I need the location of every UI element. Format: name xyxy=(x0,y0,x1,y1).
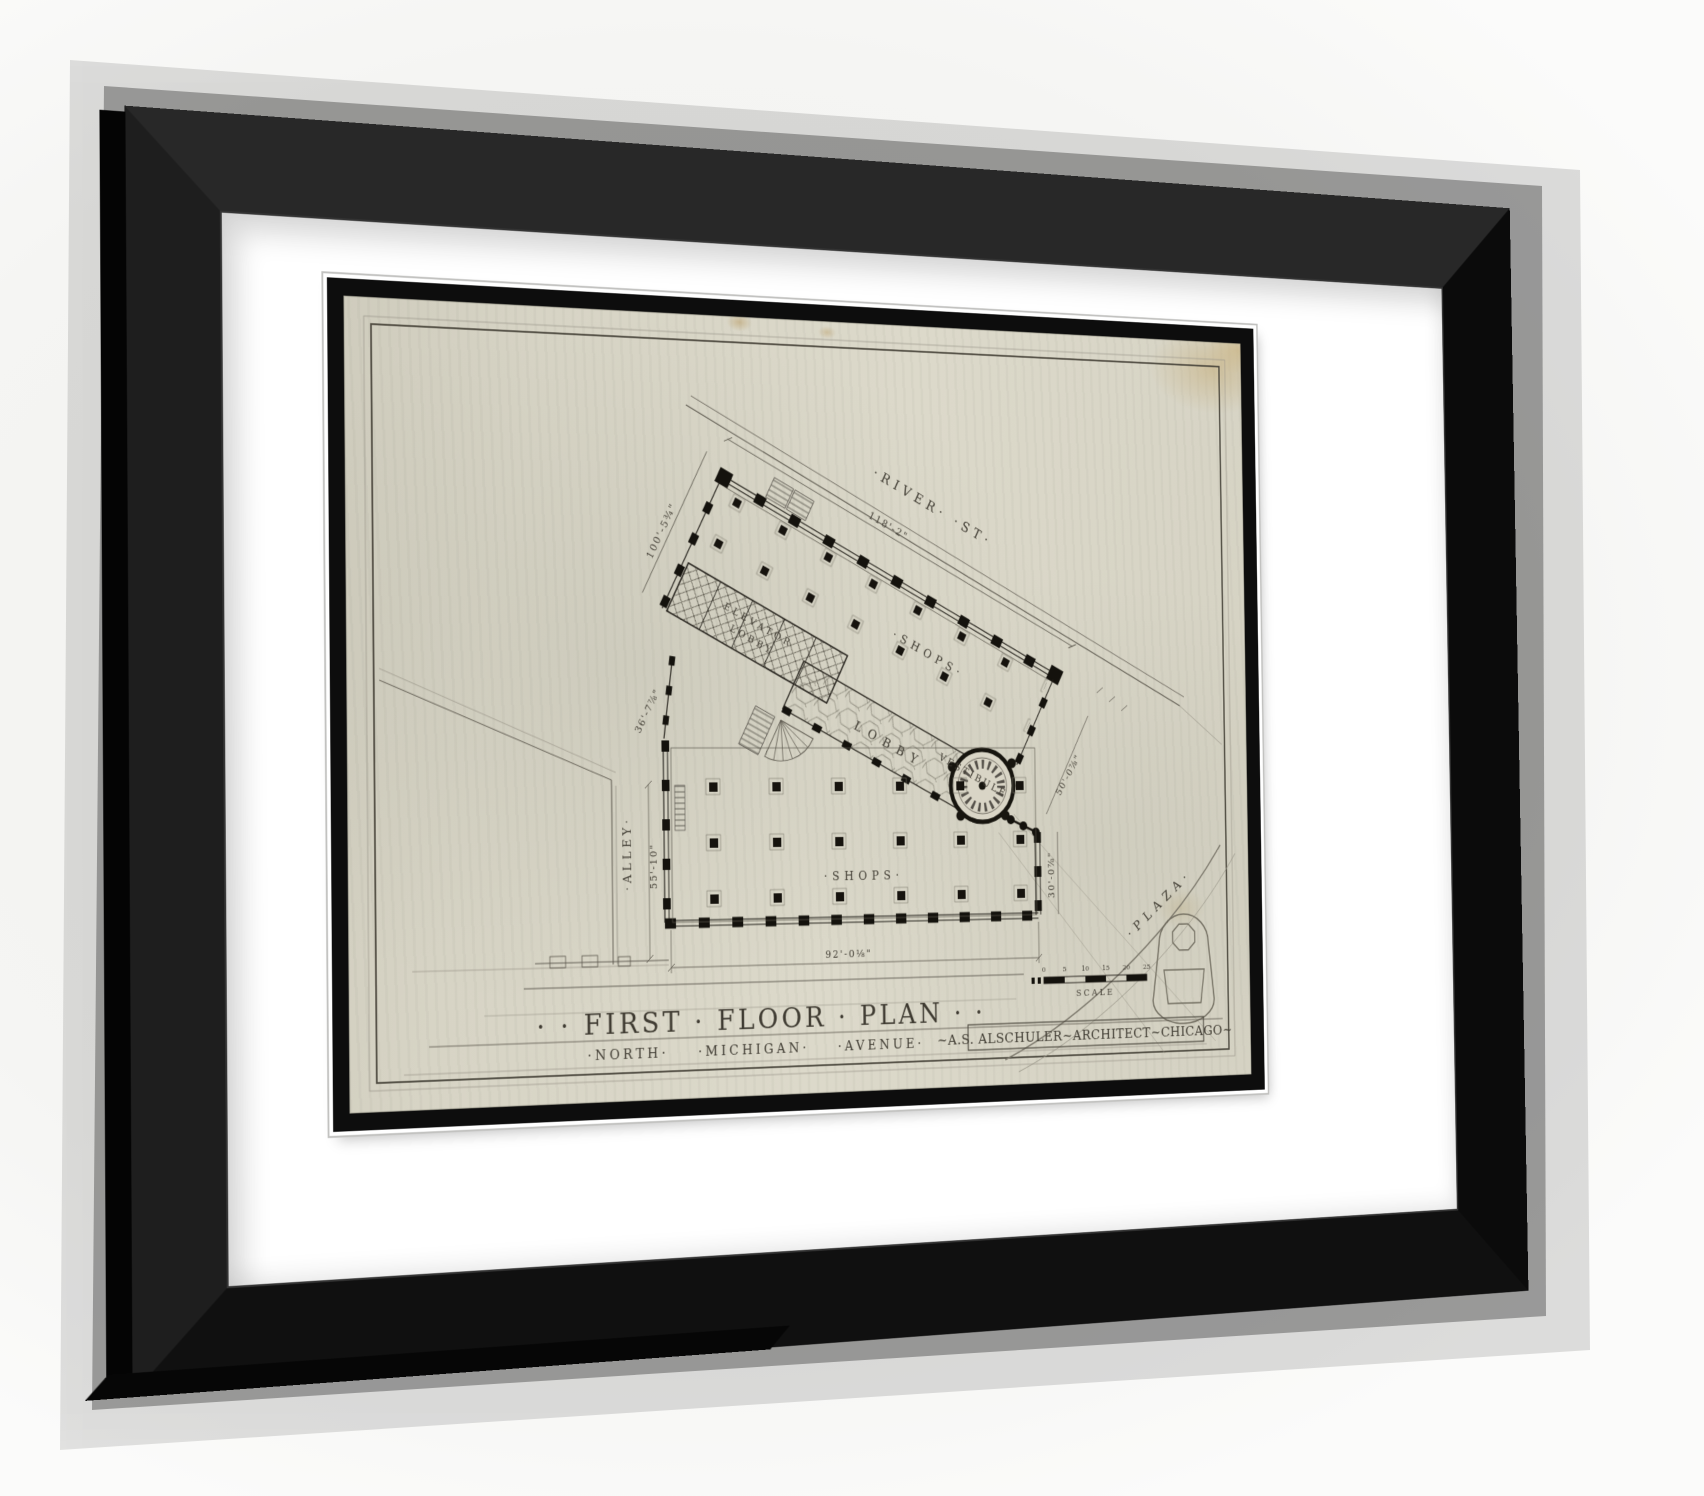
label-shops-lower: ·SHOPS· xyxy=(824,869,904,884)
scale-tick: 15 xyxy=(1102,964,1110,972)
frame-left-face xyxy=(99,110,132,1396)
scale-tick: 20 xyxy=(1122,963,1130,971)
scale-tick: 5 xyxy=(1063,965,1067,973)
scale-tick: 25 xyxy=(1143,962,1151,970)
dim-entrance-front: 50'-0⅞" xyxy=(1054,752,1083,797)
scale-label: SCALE xyxy=(1076,987,1115,998)
scale-bar: 0 5 10 15 20 25 SCALE xyxy=(1031,962,1151,1000)
dim-south-wall: 92'-0⅛" xyxy=(825,947,872,960)
dim-southwest-wall: 36'-7⅞" xyxy=(633,687,663,735)
label-alley: ·ALLEY· xyxy=(621,816,634,891)
dim-alley-width: 55'-10" xyxy=(649,844,660,890)
street-name: ·NORTH· ·MICHIGAN· ·AVENUE· xyxy=(588,1036,925,1064)
picture-frame: 118'-2" 100'-5¾" xyxy=(124,106,1528,1396)
dim-east-wall: 30'-0⅞" xyxy=(1047,852,1057,899)
matte-board: 118'-2" 100'-5¾" xyxy=(222,213,1457,1287)
drawing-sheet: 118'-2" 100'-5¾" xyxy=(343,296,1251,1114)
inner-fillet: 118'-2" 100'-5¾" xyxy=(327,277,1265,1132)
alley: ·ALLEY· xyxy=(411,780,669,972)
scale-tick: 10 xyxy=(1081,964,1089,972)
floor-plan-drawing: 118'-2" 100'-5¾" xyxy=(343,296,1251,1114)
product-photo: 118'-2" 100'-5¾" xyxy=(0,0,1704,1496)
label-river-st: ·RIVER· ·ST· xyxy=(871,465,995,550)
scale-tick: 0 xyxy=(1042,965,1046,973)
plaza-ornament xyxy=(1152,913,1215,1024)
dim-west-wall: 100'-5¾" xyxy=(644,500,679,560)
